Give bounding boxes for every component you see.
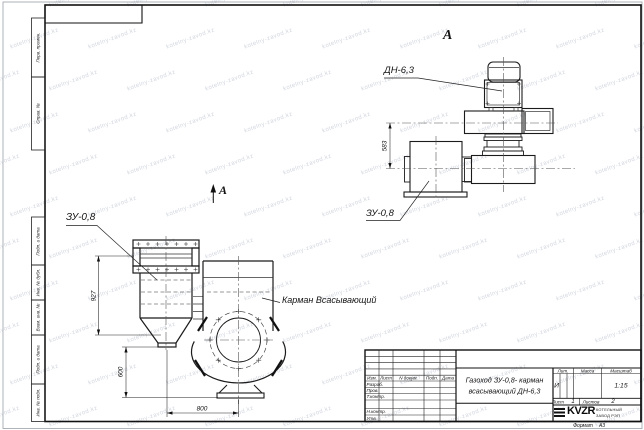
- dim-927: 927: [91, 290, 98, 301]
- zu-base: [404, 192, 467, 197]
- label-zu-front: ЗУ-0,8: [66, 212, 95, 223]
- tb-row-tkontr: Т.контр.: [367, 394, 386, 399]
- dim-600: 600: [118, 367, 125, 378]
- tb-col-podp: Подп.: [426, 376, 438, 381]
- margin-stamp-inv-dubl: Инв. № дубл.: [32, 265, 46, 300]
- label-zu-side: ЗУ-0,8: [366, 208, 394, 219]
- tb-massa-header: Масса: [581, 369, 595, 374]
- pocket-leader: [262, 298, 280, 303]
- tb-col-data: Дата: [442, 376, 454, 381]
- tb-row-prov: Пров.: [367, 388, 379, 393]
- tb-col-izm: Изм.: [367, 376, 377, 381]
- kvzr-logo-icon: [554, 408, 565, 418]
- tb-col-ndoc: N докум.: [399, 376, 418, 381]
- zu-front-leader: [66, 226, 157, 281]
- tb-lit-value: И: [554, 383, 559, 390]
- view-a-marker-label: А: [219, 183, 227, 198]
- side-view: [366, 57, 575, 221]
- drawing-sheet: kotelny-zavod.kzkotelny-zavod.kzkotelny-…: [0, 0, 644, 430]
- margin-stamp-podp-data-1: Подп. и дата: [32, 217, 46, 265]
- tb-scale-header: Масштаб: [610, 369, 631, 374]
- tb-title-line1: Газоход ЗУ-0,8- карман: [466, 375, 544, 385]
- kvzr-logo-sub1: КОТЕЛЬНЫЙ: [596, 407, 622, 412]
- tb-row-nkontr: Н.контр.: [367, 409, 386, 414]
- tb-title-line2: всасывающий ДН-6,3: [469, 386, 541, 396]
- tb-col-list: Лист: [380, 376, 392, 381]
- margin-stamp-podp-data-2: Подп. и дата: [32, 335, 46, 384]
- front-foot: [217, 385, 264, 398]
- side-duct: [465, 111, 525, 134]
- dim-583: 583: [382, 140, 389, 151]
- view-a-title: А: [443, 28, 452, 44]
- tb-row-utv: Утв.: [367, 416, 377, 421]
- side-centerlines: [386, 57, 575, 200]
- margin-stamp-sprav-no: Справ. №: [32, 77, 46, 150]
- tb-scale-value: 1:15: [614, 383, 627, 390]
- front-view: [66, 184, 286, 417]
- flange-bolt-marks: [137, 242, 198, 272]
- sheet-frame: [3, 2, 642, 429]
- margin-stamp-inv-podl: Инв. № подл.: [32, 384, 46, 422]
- margin-stamp-vzam-inv: Взам. инв. №: [32, 300, 46, 335]
- drawing-linework: [0, 0, 644, 430]
- tb-row-razrab: Разраб.: [367, 382, 384, 387]
- tb-format-value: А3: [599, 423, 605, 429]
- tb-format-label: Формат: [573, 423, 593, 429]
- view-a-arrow: [211, 184, 217, 203]
- outlet-flange: [522, 109, 553, 134]
- margin-stamp-perv-primen: Перв. примен.: [32, 18, 46, 77]
- kvzr-logo-text: KVZR: [567, 405, 595, 417]
- tb-sheet-label: Лист: [552, 399, 564, 404]
- kvzr-logo-sub2: ЗАВОД РЭП: [596, 413, 620, 418]
- label-pocket: Карман Всасывающий: [282, 295, 376, 305]
- motor: [488, 62, 520, 82]
- tb-lit-header: Лит.: [558, 369, 569, 374]
- dim-800: 800: [197, 405, 208, 412]
- label-dn: ДН-6,3: [384, 65, 414, 76]
- tb-sheets-value: 2: [611, 399, 614, 405]
